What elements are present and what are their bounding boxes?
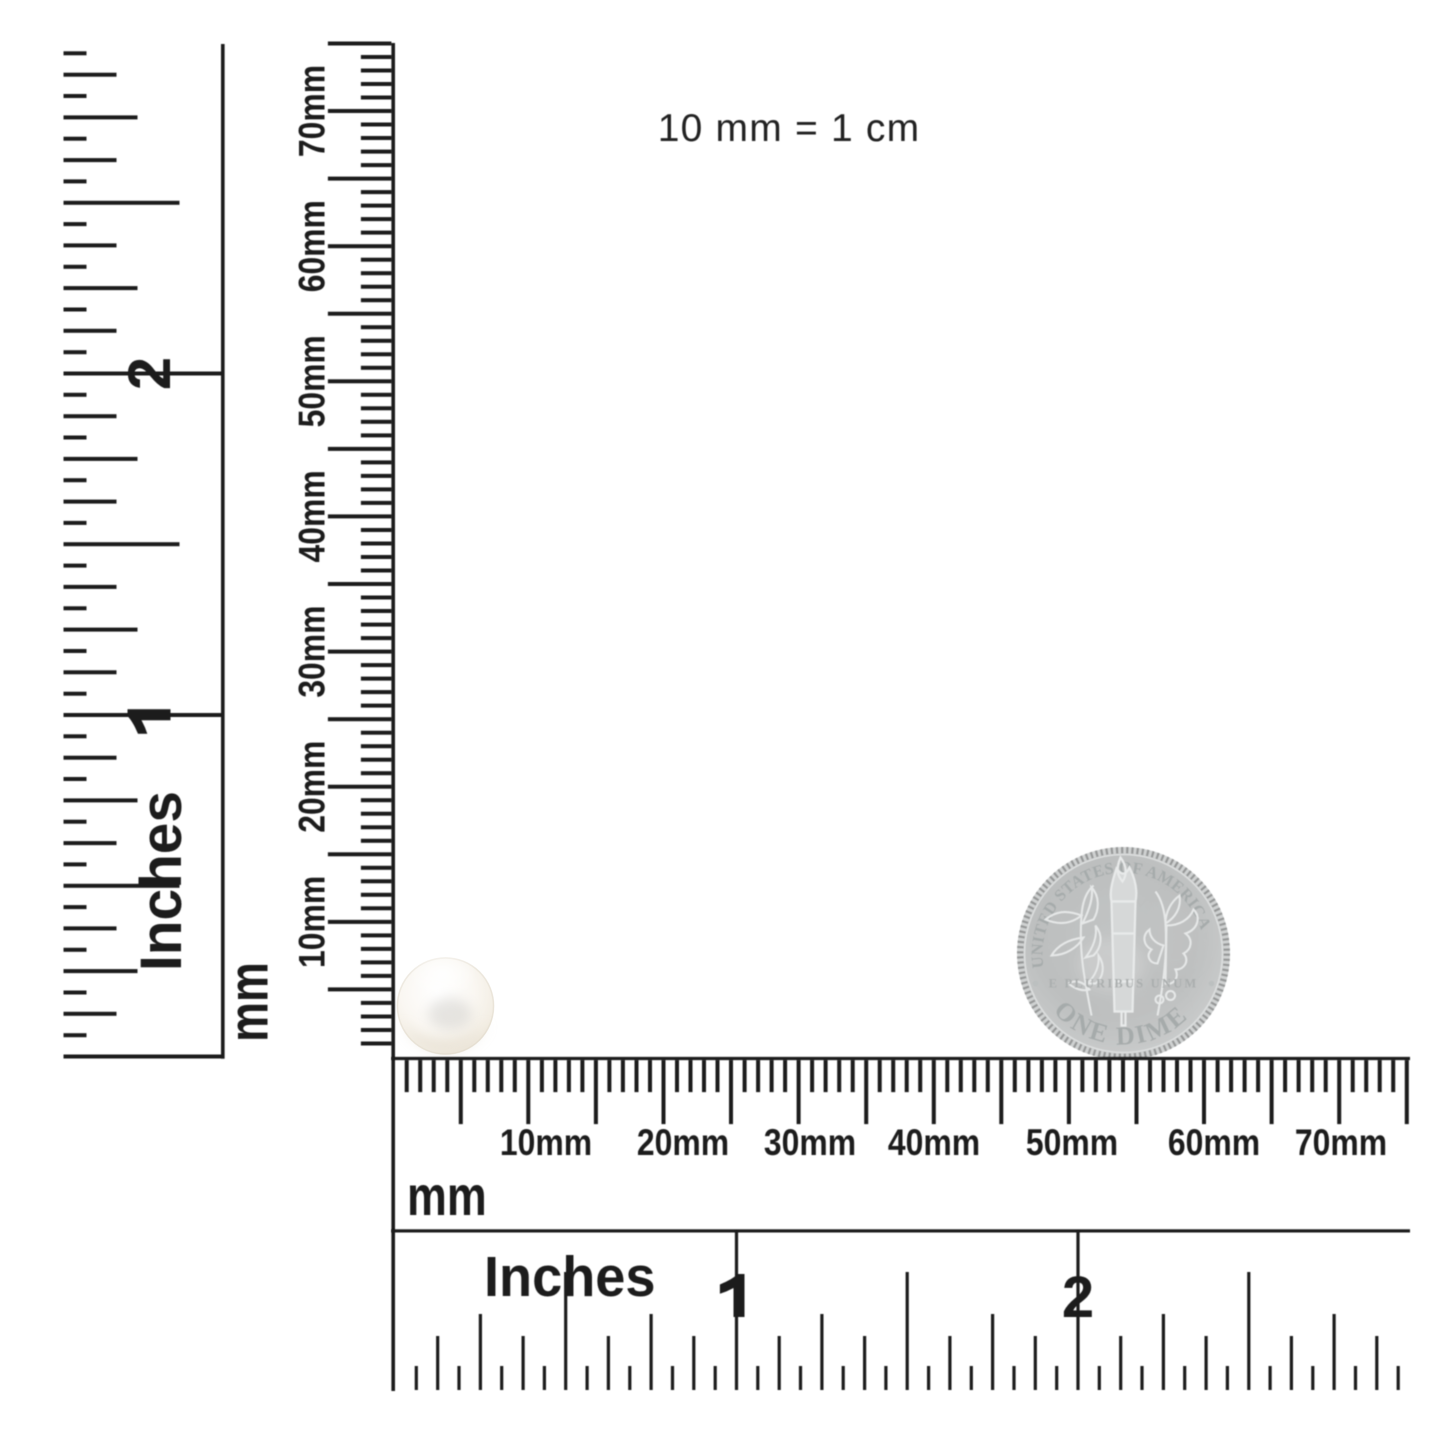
svg-text:30mm: 30mm	[291, 606, 333, 698]
svg-text:10 mm = 1 cm: 10 mm = 1 cm	[658, 107, 921, 150]
svg-text:10mm: 10mm	[500, 1122, 592, 1164]
svg-text:Inches: Inches	[484, 1245, 656, 1309]
svg-text:60mm: 60mm	[1168, 1122, 1260, 1164]
svg-text:mm: mm	[407, 1164, 487, 1227]
svg-text:50mm: 50mm	[1026, 1122, 1118, 1164]
svg-text:40mm: 40mm	[291, 470, 333, 562]
svg-text:E PLURIBUS UNUM: E PLURIBUS UNUM	[1049, 977, 1199, 991]
svg-text:40mm: 40mm	[888, 1122, 980, 1164]
svg-text:70mm: 70mm	[1295, 1122, 1387, 1164]
svg-text:2: 2	[1062, 1265, 1094, 1330]
svg-text:Inches: Inches	[129, 791, 194, 971]
svg-text:60mm: 60mm	[291, 200, 333, 292]
svg-text:70mm: 70mm	[291, 65, 333, 157]
svg-text:mm: mm	[217, 962, 280, 1042]
svg-text:2: 2	[116, 357, 183, 390]
svg-text:20mm: 20mm	[291, 741, 333, 833]
svg-text:20mm: 20mm	[637, 1122, 729, 1164]
svg-text:10mm: 10mm	[291, 876, 333, 968]
svg-text:50mm: 50mm	[291, 335, 333, 427]
svg-text:30mm: 30mm	[764, 1122, 856, 1164]
